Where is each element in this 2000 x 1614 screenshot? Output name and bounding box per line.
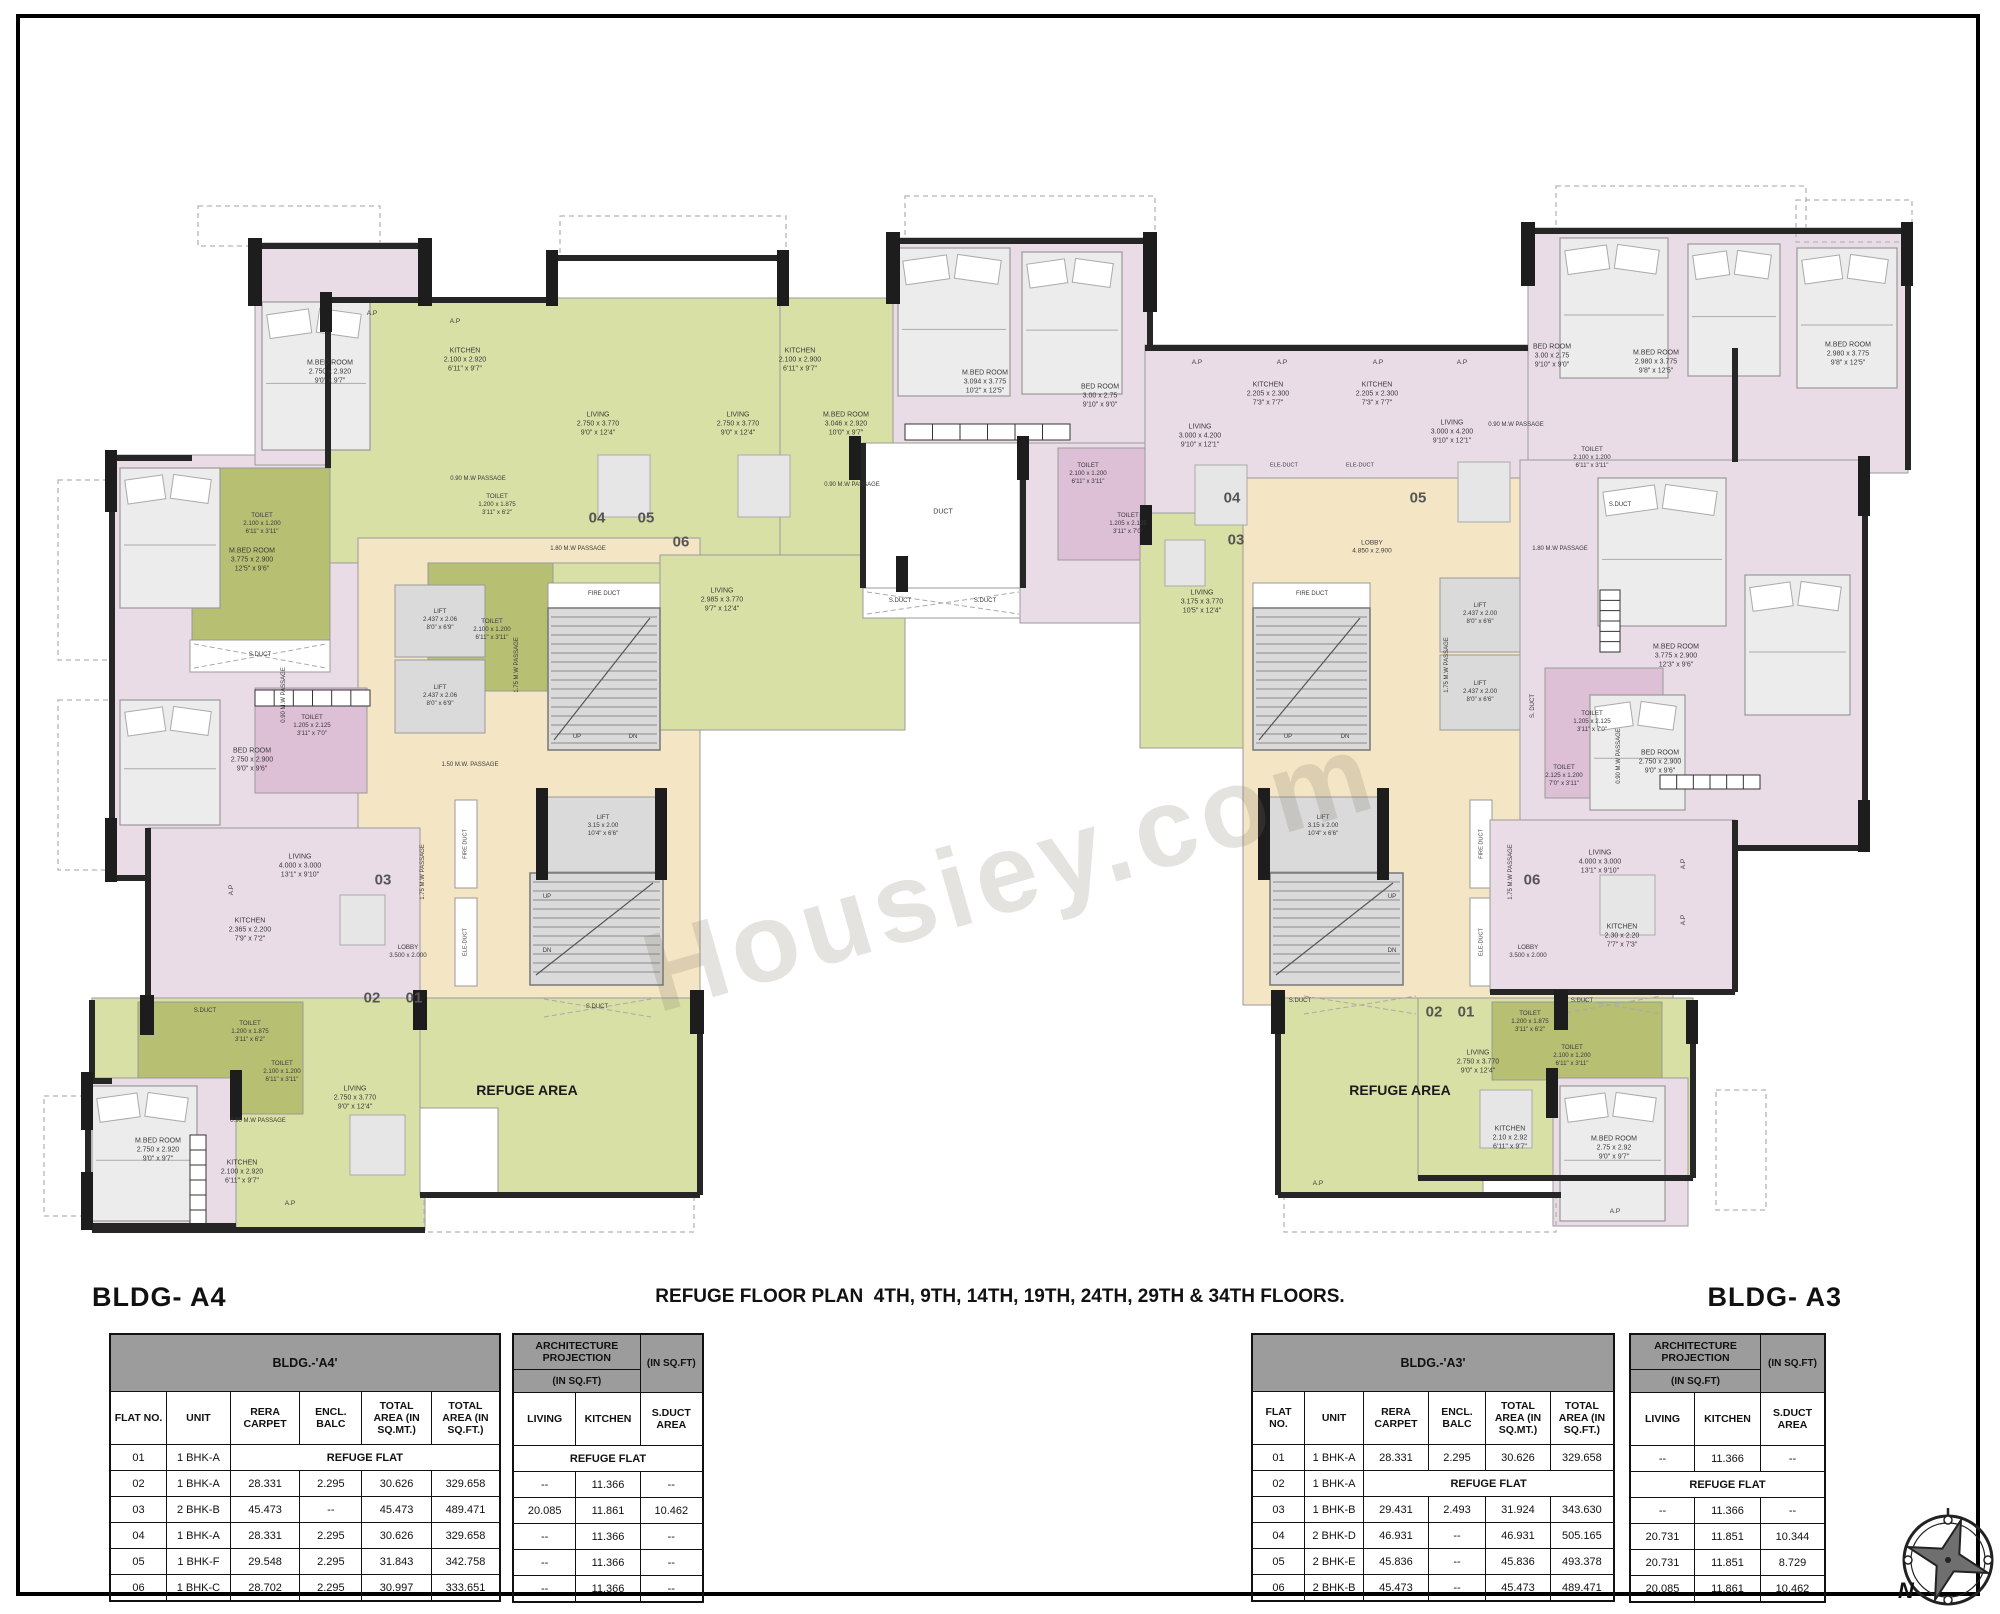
compass-north-label: N [1898, 1578, 1914, 1604]
room-label: 1.75 M.W PASSAGE [1444, 637, 1452, 693]
table-cell: REFUGE FLAT [1364, 1471, 1614, 1497]
table-cell: FLAT NO. [111, 1392, 167, 1445]
room-label: LIFT 2.437 x 2.06 8'0" x 6'9" [423, 684, 457, 708]
table-cell: 10.462 [640, 1498, 702, 1524]
table-cell: FLAT NO. [1253, 1392, 1305, 1445]
table-cell: 03 [111, 1497, 167, 1523]
table-cell: ENCL. BALC [300, 1392, 362, 1445]
table-row: 20.08511.86110.462 [514, 1498, 703, 1524]
table-cell: -- [1760, 1446, 1824, 1472]
room-label: A.P [450, 318, 460, 326]
table-cell: TOTAL AREA (IN SQ.MT.) [1486, 1392, 1551, 1445]
room-label: DUCT [933, 507, 952, 516]
table-cell: 11.366 [576, 1524, 640, 1550]
bldg-a3-title: BLDG- A3 [1708, 1282, 1843, 1313]
table-cell: 2.295 [300, 1549, 362, 1575]
room-label: TOILET 2.100 x 1.200 6'11" x 3'11" [1553, 1044, 1591, 1068]
room-label: TOILET 2.100 x 1.200 6'11" x 3'11" [1069, 462, 1107, 486]
table-cell: 1 BHK-A [1304, 1471, 1363, 1497]
table-row: 041 BHK-A28.3312.29530.626329.658 [111, 1523, 500, 1549]
flat-number: 06 [673, 532, 690, 552]
room-label: REFUGE AREA [1349, 1081, 1450, 1099]
room-label: TOILET 1.200 x 1.875 3'11" x 6'2" [478, 493, 516, 517]
table-cell: 20.731 [1631, 1550, 1695, 1576]
table-cell: 1 BHK-B [1304, 1497, 1363, 1523]
table-row: 052 BHK-E45.836--45.836493.378 [1253, 1549, 1614, 1575]
table-cell: -- [640, 1576, 702, 1602]
table-row: 031 BHK-B29.4312.49331.924343.630 [1253, 1497, 1614, 1523]
table-row: 021 BHK-A28.3312.29530.626329.658 [111, 1471, 500, 1497]
room-label: A.P [1373, 359, 1383, 367]
room-label: LIVING 3.000 x 4.200 9'10" x 12'1" [1179, 422, 1221, 449]
table-cell: -- [300, 1497, 362, 1523]
room-label: M.BED ROOM 3.775 x 2.900 12'5" x 9'6" [229, 546, 275, 573]
room-label: S.DUCT [974, 598, 996, 606]
table-cell: 04 [111, 1523, 167, 1549]
room-label: BED ROOM 2.750 x 2.900 9'0" x 9'6" [231, 746, 273, 773]
room-label: A.P [1610, 1208, 1620, 1216]
arch-projection-table: ARCHITECTURE PROJECTION(IN SQ.FT)(IN SQ.… [1630, 1334, 1825, 1602]
table-cell: 329.658 [431, 1523, 499, 1549]
room-label: A.P [1457, 359, 1467, 367]
table-cell: RERA CARPET [230, 1392, 300, 1445]
table-cell: 01 [111, 1445, 167, 1471]
area-table: BLDG.-'A3'FLAT NO.UNITRERA CARPETENCL. B… [1252, 1334, 1614, 1601]
room-label: S.DUCT [194, 1008, 216, 1016]
room-label: UP [1388, 894, 1396, 902]
room-label: A.P [1192, 359, 1202, 367]
room-label: KITCHEN 2.365 x 2.200 7'9" x 7'2" [229, 916, 271, 943]
table-row: --11.366-- [514, 1576, 703, 1602]
room-label: M.BED ROOM 3.094 x 3.775 10'2" x 12'5" [962, 368, 1008, 395]
room-label: LIVING 2.985 x 3.770 9'7" x 12'4" [701, 586, 743, 613]
flat-number: 04 [589, 508, 606, 528]
table-cell: -- [514, 1524, 576, 1550]
room-label: TOILET 1.200 x 1.875 3'11" x 6'2" [1511, 1010, 1549, 1034]
room-label: M.BED ROOM 2.750 x 2.920 9'0" x 9'7" [307, 358, 353, 385]
table-row: 042 BHK-D46.931--46.931505.165 [1253, 1523, 1614, 1549]
table-row: 062 BHK-B45.473--45.473489.471 [1253, 1575, 1614, 1601]
table-cell: 2.295 [300, 1471, 362, 1497]
room-label: A.P [228, 885, 236, 895]
room-label: KITCHEN 2.100 x 2.920 6'11" x 9'7" [221, 1158, 263, 1185]
room-label: LOBBY 3.500 x 2.000 [1509, 944, 1547, 960]
room-label: M.BED ROOM 2.750 x 2.920 9'0" x 9'7" [135, 1136, 181, 1163]
table-cell: 20.085 [514, 1498, 576, 1524]
table-cell: 1 BHK-A [167, 1523, 231, 1549]
table-cell: 29.548 [230, 1549, 300, 1575]
room-label: A.P [1277, 359, 1287, 367]
table-row: 20.08511.86110.462 [1631, 1576, 1825, 1602]
flat-number: 02 [1426, 1002, 1443, 1022]
flat-number: 04 [1224, 488, 1241, 508]
table-row: 021 BHK-AREFUGE FLAT [1253, 1471, 1614, 1497]
room-label: 1.75 M.W PASSAGE [514, 637, 522, 693]
table-row: --11.366-- [1631, 1446, 1825, 1472]
table-cell: 45.473 [1364, 1575, 1429, 1601]
table-cell: UNIT [1304, 1392, 1363, 1445]
room-label: 1.50 M.W. PASSAGE [442, 762, 499, 770]
room-label: TOILET 2.100 x 1.200 6'11" x 3'11" [473, 618, 511, 642]
table-cell: 46.931 [1364, 1523, 1429, 1549]
room-label: FIRE DUCT [1296, 591, 1328, 599]
table-row: --11.366-- [1631, 1498, 1825, 1524]
room-label: ELE-DUCT [1270, 462, 1298, 469]
table-cell: 2 BHK-E [1304, 1549, 1363, 1575]
table-cell: BLDG.-'A3' [1253, 1335, 1614, 1392]
room-label: 1.80 M.W PASSAGE [550, 546, 606, 554]
flat-number: 03 [375, 870, 392, 890]
table-cell: REFUGE FLAT [1631, 1472, 1825, 1498]
table-cell: -- [1428, 1549, 1485, 1575]
room-label: A.P [285, 1200, 295, 1208]
flat-number: 03 [1228, 530, 1245, 550]
room-label: 1.80 M.W PASSAGE [1532, 546, 1588, 554]
table-cell: 20.085 [1631, 1576, 1695, 1602]
table-row: REFUGE FLAT [1631, 1472, 1825, 1498]
table-cell: 1 BHK-F [167, 1549, 231, 1575]
table-cell: 333.651 [431, 1575, 499, 1601]
table-cell: -- [1760, 1498, 1824, 1524]
table-cell: 1 BHK-C [167, 1575, 231, 1601]
room-label: KITCHEN 2.10 x 2.92 6'11" x 9'7" [1493, 1124, 1528, 1151]
bldg-a3-area-table: BLDG.-'A3'FLAT NO.UNITRERA CARPETENCL. B… [1252, 1334, 1614, 1601]
table-cell: 8.729 [1760, 1550, 1824, 1576]
room-label: FIRE DUCT [1478, 829, 1485, 859]
table-cell: 45.473 [362, 1497, 432, 1523]
room-label: UP [573, 734, 581, 742]
table-cell: S.DUCT AREA [640, 1393, 702, 1446]
table-cell: 11.861 [1695, 1576, 1761, 1602]
room-label: ELE-DUCT [1478, 928, 1485, 956]
room-label: M.BED ROOM 2.75 x 2.92 9'0" x 9'7" [1591, 1134, 1637, 1161]
area-table: BLDG.-'A4'FLAT NO.UNITRERA CARPETENCL. B… [110, 1334, 500, 1601]
room-label: TOILET 1.205 x 2.125 3'11" x 7'0" [1573, 710, 1611, 734]
table-cell: 11.366 [576, 1576, 640, 1602]
table-row: 011 BHK-AREFUGE FLAT [111, 1445, 500, 1471]
table-cell: 1 BHK-A [1304, 1445, 1363, 1471]
table-row: 032 BHK-B45.473--45.473489.471 [111, 1497, 500, 1523]
room-label: DN [1388, 948, 1397, 956]
bldg-a3-arch-projection-table: ARCHITECTURE PROJECTION(IN SQ.FT)(IN SQ.… [1630, 1334, 1825, 1602]
table-cell: 45.473 [1486, 1575, 1551, 1601]
table-cell: 45.836 [1486, 1549, 1551, 1575]
table-cell: 11.851 [1695, 1524, 1761, 1550]
table-cell: 20.731 [1631, 1524, 1695, 1550]
table-cell: 489.471 [431, 1497, 499, 1523]
flat-number: 02 [364, 988, 381, 1008]
table-row: 061 BHK-C28.7022.29530.997333.651 [111, 1575, 500, 1601]
room-label: LIVING 4.000 x 3.000 13'1" x 9'10" [279, 852, 321, 879]
table-row: 20.73111.8518.729 [1631, 1550, 1825, 1576]
room-label: LIVING 3.000 x 4.200 9'10" x 12'1" [1431, 418, 1473, 445]
table-cell: -- [640, 1550, 702, 1576]
room-label: BED ROOM 2.750 x 2.900 9'0" x 9'6" [1639, 748, 1681, 775]
room-label: 1.75 M.W PASSAGE [420, 844, 428, 900]
room-label: TOILET 2.100 x 1.200 6'11" x 3'11" [263, 1060, 301, 1084]
room-label: LIVING 2.750 x 3.770 9'0" x 12'4" [334, 1084, 376, 1111]
table-cell: 329.658 [1550, 1445, 1613, 1471]
room-label: BED ROOM 3.00 x 2.75 9'10" x 9'0" [1081, 382, 1119, 409]
table-cell: 30.626 [362, 1523, 432, 1549]
table-cell: 06 [1253, 1575, 1305, 1601]
table-cell: 05 [1253, 1549, 1305, 1575]
room-label: S. DUCT [1530, 694, 1538, 718]
table-cell: 343.630 [1550, 1497, 1613, 1523]
table-cell: 11.366 [576, 1550, 640, 1576]
table-cell: 28.331 [1364, 1445, 1429, 1471]
flat-number: 05 [638, 508, 655, 528]
table-cell: 29.431 [1364, 1497, 1429, 1523]
table-cell: S.DUCT AREA [1760, 1393, 1824, 1446]
table-cell: 1 BHK-A [167, 1471, 231, 1497]
room-label: TOILET 2.100 x 1.200 6'11" x 3'11" [1573, 446, 1611, 470]
table-cell: 2.295 [300, 1523, 362, 1549]
room-label: S.DUCT [586, 1004, 608, 1012]
room-label: LIVING 3.175 x 3.770 10'5" x 12'4" [1181, 588, 1223, 615]
table-cell: 11.366 [1695, 1446, 1761, 1472]
table-row: REFUGE FLAT [514, 1446, 703, 1472]
table-cell: 11.861 [576, 1498, 640, 1524]
table-cell: -- [514, 1576, 576, 1602]
table-cell: 05 [111, 1549, 167, 1575]
table-cell: 10.462 [1760, 1576, 1824, 1602]
table-cell: -- [1631, 1446, 1695, 1472]
arch-projection-table: ARCHITECTURE PROJECTION(IN SQ.FT)(IN SQ.… [513, 1334, 703, 1602]
table-cell: 2.295 [1428, 1445, 1485, 1471]
table-cell: 28.702 [230, 1575, 300, 1601]
table-cell: ARCHITECTURE PROJECTION [514, 1335, 641, 1370]
room-label: TOILET 2.100 x 1.200 6'11" x 3'11" [243, 512, 281, 536]
room-label: A.P [1680, 859, 1688, 869]
table-cell: 31.843 [362, 1549, 432, 1575]
room-label: DN [629, 734, 638, 742]
room-label: TOILET 2.125 x 1.200 7'0" x 3'11" [1545, 764, 1583, 788]
table-cell: 2.295 [300, 1575, 362, 1601]
room-label: DN [543, 948, 552, 956]
table-cell: -- [1428, 1575, 1485, 1601]
table-cell: 45.836 [1364, 1549, 1429, 1575]
table-cell: BLDG.-'A4' [111, 1335, 500, 1392]
table-cell: TOTAL AREA (IN SQ.FT.) [1550, 1392, 1613, 1445]
table-cell: 02 [1253, 1471, 1305, 1497]
table-row: --11.366-- [514, 1472, 703, 1498]
table-cell: (IN SQ.FT) [514, 1370, 641, 1393]
room-label: 0.90 M.W PASSAGE [281, 667, 289, 723]
room-label: ELE-DUCT [1346, 462, 1374, 469]
table-cell: 1 BHK-A [167, 1445, 231, 1471]
flat-number: 06 [1524, 870, 1541, 890]
table-cell: (IN SQ.FT) [1760, 1335, 1824, 1393]
refuge-floor-plan-page: { "watermark": "Housiey.com", "header": … [0, 0, 2000, 1614]
room-label: LIVING 2.750 x 3.770 9'0" x 12'4" [1457, 1048, 1499, 1075]
table-cell: 06 [111, 1575, 167, 1601]
room-label: A.P [1313, 1180, 1323, 1188]
table-cell: 11.366 [1695, 1498, 1761, 1524]
table-cell: KITCHEN [576, 1393, 640, 1446]
room-label: LOBBY 3.500 x 2.000 [389, 944, 427, 960]
room-label: S.DUCT [1609, 502, 1631, 510]
table-cell: 10.344 [1760, 1524, 1824, 1550]
table-row: --11.366-- [514, 1524, 703, 1550]
room-label: S.DUCT [889, 598, 911, 606]
table-cell: -- [640, 1472, 702, 1498]
room-label: ELE-DUCT [462, 928, 469, 956]
table-cell: -- [640, 1524, 702, 1550]
room-label: 0.90 M.W PASSAGE [1488, 422, 1544, 430]
room-label: 0.90 M.W PASSAGE [824, 482, 880, 490]
table-cell: 11.851 [1695, 1550, 1761, 1576]
room-label: KITCHEN 2.205 x 2.300 7'3" x 7'7" [1356, 380, 1398, 407]
room-label: TOILET 1.205 x 2.125 3'11" x 7'0" [293, 714, 331, 738]
room-label: KITCHEN 2.205 x 2.300 7'3" x 7'7" [1247, 380, 1289, 407]
table-cell: REFUGE FLAT [514, 1446, 703, 1472]
table-cell: 31.924 [1486, 1497, 1551, 1523]
room-label: M.BED ROOM 2.980 x 3.775 9'8" x 12'5" [1633, 348, 1679, 375]
table-cell: 30.626 [362, 1471, 432, 1497]
flat-number: 01 [406, 988, 423, 1008]
room-label: KITCHEN 2.100 x 2.900 6'11" x 9'7" [779, 346, 821, 373]
room-label: LIVING 2.750 x 3.770 9'0" x 12'4" [717, 410, 759, 437]
room-label: 0.90 M.W PASSAGE [230, 1118, 286, 1126]
room-label: FIRE DUCT [462, 829, 469, 859]
room-label: KITCHEN 2.30 x 2.20 7'7" x 7'3" [1605, 922, 1640, 949]
table-cell: 28.331 [230, 1523, 300, 1549]
table-cell: 02 [111, 1471, 167, 1497]
table-row: 051 BHK-F29.5482.29531.843342.758 [111, 1549, 500, 1575]
table-cell: 342.758 [431, 1549, 499, 1575]
room-label: REFUGE AREA [476, 1081, 577, 1099]
table-cell: 505.165 [1550, 1523, 1613, 1549]
table-cell: ENCL. BALC [1428, 1392, 1485, 1445]
room-label: LOBBY 4.850 x 2.900 [1352, 540, 1391, 557]
room-label: A.P [367, 310, 377, 318]
room-label: LIVING 2.750 x 3.770 9'0" x 12'4" [577, 410, 619, 437]
table-cell: 03 [1253, 1497, 1305, 1523]
bldg-a4-area-table: BLDG.-'A4'FLAT NO.UNITRERA CARPETENCL. B… [110, 1334, 500, 1601]
table-cell: 30.626 [1486, 1445, 1551, 1471]
room-label: LIFT 2.437 x 2.00 8'0" x 6'6" [1463, 602, 1497, 626]
room-label: S.DUCT [249, 652, 271, 660]
table-row: --11.366-- [514, 1550, 703, 1576]
room-label: TOILET 1.205 x 2.125 3'11" x 7'0" [1109, 512, 1147, 536]
table-cell: 2 BHK-B [1304, 1575, 1363, 1601]
flat-number: 05 [1410, 488, 1427, 508]
room-label: KITCHEN 2.100 x 2.920 6'11" x 9'7" [444, 346, 486, 373]
table-cell: 04 [1253, 1523, 1305, 1549]
page-title: REFUGE FLOOR PLAN 4TH, 9TH, 14TH, 19TH, … [0, 1286, 2000, 1308]
table-cell: 493.378 [1550, 1549, 1613, 1575]
room-label: LIVING 4.000 x 3.000 13'1" x 9'10" [1579, 848, 1621, 875]
table-cell: RERA CARPET [1364, 1392, 1429, 1445]
table-cell: 46.931 [1486, 1523, 1551, 1549]
table-cell: ARCHITECTURE PROJECTION [1631, 1335, 1761, 1370]
room-label: S.DUCT [1289, 998, 1311, 1006]
room-label: BED ROOM 3.00 x 2.75 9'10" x 9'0" [1533, 342, 1571, 369]
table-cell: (IN SQ.FT) [1631, 1370, 1761, 1393]
table-cell: 2 BHK-D [1304, 1523, 1363, 1549]
room-label: M.BED ROOM 2.980 x 3.775 9'8" x 12'5" [1825, 340, 1871, 367]
table-cell: 11.366 [576, 1472, 640, 1498]
table-cell: 2 BHK-B [167, 1497, 231, 1523]
table-cell: TOTAL AREA (IN SQ.FT.) [431, 1392, 499, 1445]
room-label: S.DUCT [1571, 998, 1593, 1006]
table-cell: -- [514, 1550, 576, 1576]
room-label: 0.90 M.W PASSAGE [1616, 728, 1624, 784]
room-label: FIRE DUCT [588, 591, 620, 599]
bldg-a4-arch-projection-table: ARCHITECTURE PROJECTION(IN SQ.FT)(IN SQ.… [513, 1334, 703, 1602]
room-label: 0.90 M.W PASSAGE [450, 476, 506, 484]
table-cell: 329.658 [431, 1471, 499, 1497]
table-cell: -- [1428, 1523, 1485, 1549]
room-label: TOILET 1.200 x 1.875 3'11" x 6'2" [231, 1020, 269, 1044]
room-label: LIFT 2.437 x 2.00 8'0" x 6'6" [1463, 680, 1497, 704]
room-label: LIFT 2.437 x 2.06 8'0" x 6'9" [423, 608, 457, 632]
table-cell: 489.471 [1550, 1575, 1613, 1601]
table-cell: 28.331 [230, 1471, 300, 1497]
table-cell: LIVING [514, 1393, 576, 1446]
flat-number: 01 [1458, 1002, 1475, 1022]
table-row: 011 BHK-A28.3312.29530.626329.658 [1253, 1445, 1614, 1471]
table-cell: 45.473 [230, 1497, 300, 1523]
room-label: LIFT 3.15 x 2.00 10'4" x 6'6" [588, 814, 619, 838]
table-cell: LIVING [1631, 1393, 1695, 1446]
room-label: 1.75 M.W PASSAGE [1508, 844, 1516, 900]
room-label: UP [543, 894, 551, 902]
table-cell: UNIT [167, 1392, 231, 1445]
table-cell: -- [1631, 1498, 1695, 1524]
room-label: M.BED ROOM 3.046 x 2.920 10'0" x 9'7" [823, 410, 869, 437]
table-cell: -- [514, 1472, 576, 1498]
table-cell: TOTAL AREA (IN SQ.MT.) [362, 1392, 432, 1445]
room-label: A.P [1680, 915, 1688, 925]
table-cell: 01 [1253, 1445, 1305, 1471]
table-cell: (IN SQ.FT) [640, 1335, 702, 1393]
table-cell: KITCHEN [1695, 1393, 1761, 1446]
room-label: M.BED ROOM 3.775 x 2.900 12'3" x 9'6" [1653, 642, 1699, 669]
table-cell: 2.493 [1428, 1497, 1485, 1523]
table-cell: REFUGE FLAT [230, 1445, 499, 1471]
table-row: 20.73111.85110.344 [1631, 1524, 1825, 1550]
table-cell: 30.997 [362, 1575, 432, 1601]
